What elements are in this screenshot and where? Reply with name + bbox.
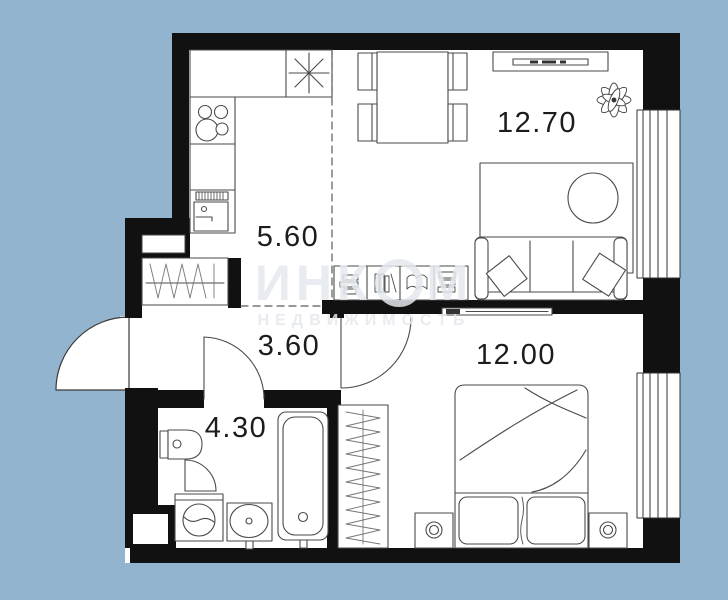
window-living (637, 110, 680, 278)
wall-bedroom-door-stub (330, 300, 344, 318)
bedroom-wardrobe (338, 405, 388, 548)
floorplan-page: { "background_color": "#92b4cf", "wall_c… (0, 0, 728, 600)
coffee-table (568, 173, 618, 223)
entrance-door (56, 317, 129, 390)
bookshelf (334, 266, 468, 300)
plant-icon (597, 83, 631, 117)
toilet-icon (160, 430, 202, 459)
washing-machine-icon (175, 494, 223, 541)
window-sill-living (637, 110, 643, 278)
bathtub-icon (278, 412, 328, 548)
duct-niche-upper (142, 235, 185, 253)
chair (448, 104, 467, 141)
window-bedroom (637, 373, 680, 518)
floorplan-drawing: 12.70 5.60 3.60 4.30 12.00 (0, 0, 728, 600)
wall-left-upper (172, 33, 189, 222)
bathroom-area-label: 4.30 (205, 412, 267, 444)
wall-top (172, 33, 680, 50)
chair (358, 53, 377, 90)
wall-closet-right (228, 258, 241, 308)
entrance-door-swing (56, 317, 129, 390)
chair (448, 53, 467, 90)
tv-console (493, 52, 608, 71)
bed (455, 385, 588, 548)
nightstand-right (589, 513, 627, 548)
bathroom-door-opening (204, 390, 264, 408)
bed-pillow (459, 497, 518, 544)
nightstand-left (415, 513, 453, 548)
sink-asterisk-icon (289, 53, 329, 93)
chair (358, 104, 377, 141)
entry-closet (142, 258, 228, 305)
bedroom-tv-console (442, 308, 552, 315)
kitchen-appliance-icon (194, 192, 228, 231)
duct-niche-lower (133, 514, 168, 544)
bedroom-area-label: 12.00 (476, 339, 556, 371)
wall-left-mid (125, 258, 142, 318)
sofa (475, 237, 627, 300)
hallway-area-label: 3.60 (258, 330, 320, 362)
window-sill-bedroom (637, 373, 643, 518)
wall-bottom (130, 548, 680, 563)
kitchen-area-label: 5.60 (257, 221, 319, 253)
living-area-label: 12.70 (497, 107, 577, 139)
bed-pillow (527, 497, 585, 544)
sofa-armrest (475, 238, 488, 299)
